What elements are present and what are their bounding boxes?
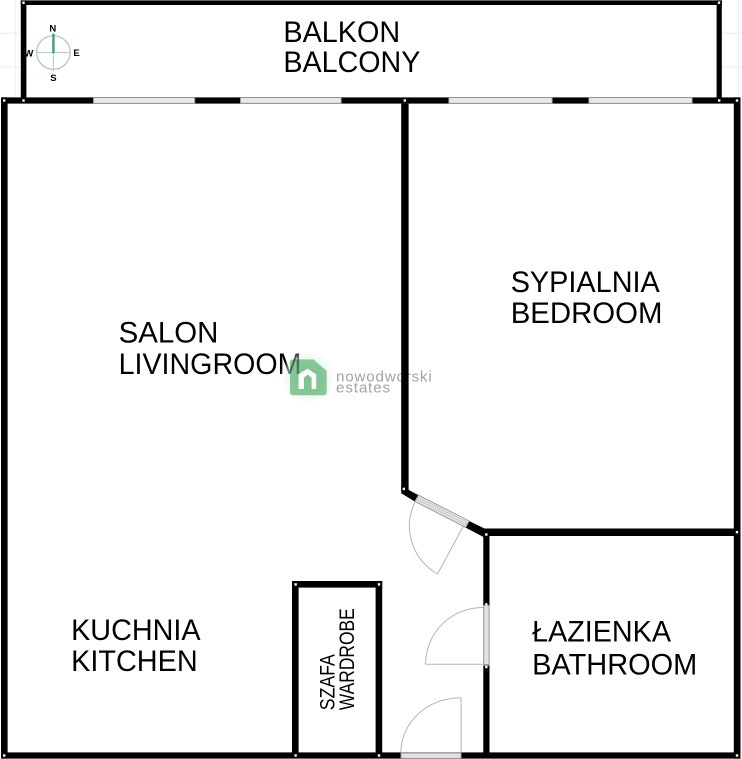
svg-text:ŁAZIENKA: ŁAZIENKA (532, 616, 671, 649)
svg-text:LIVINGROOM: LIVINGROOM (119, 348, 302, 381)
svg-text:KUCHNIA: KUCHNIA (71, 614, 201, 647)
svg-text:KITCHEN: KITCHEN (71, 645, 198, 678)
svg-text:SALON: SALON (119, 317, 219, 350)
svg-text:BALCONY: BALCONY (283, 46, 420, 79)
svg-text:SYPIALNIA: SYPIALNIA (511, 266, 660, 299)
svg-text:E: E (73, 48, 79, 59)
svg-text:BALKON: BALKON (283, 16, 400, 49)
svg-text:WARDROBE: WARDROBE (335, 608, 359, 710)
svg-text:BEDROOM: BEDROOM (511, 297, 663, 330)
svg-text:S: S (50, 73, 56, 84)
svg-text:N: N (49, 24, 56, 35)
svg-text:estates: estates (336, 380, 391, 397)
svg-text:BATHROOM: BATHROOM (532, 649, 697, 682)
